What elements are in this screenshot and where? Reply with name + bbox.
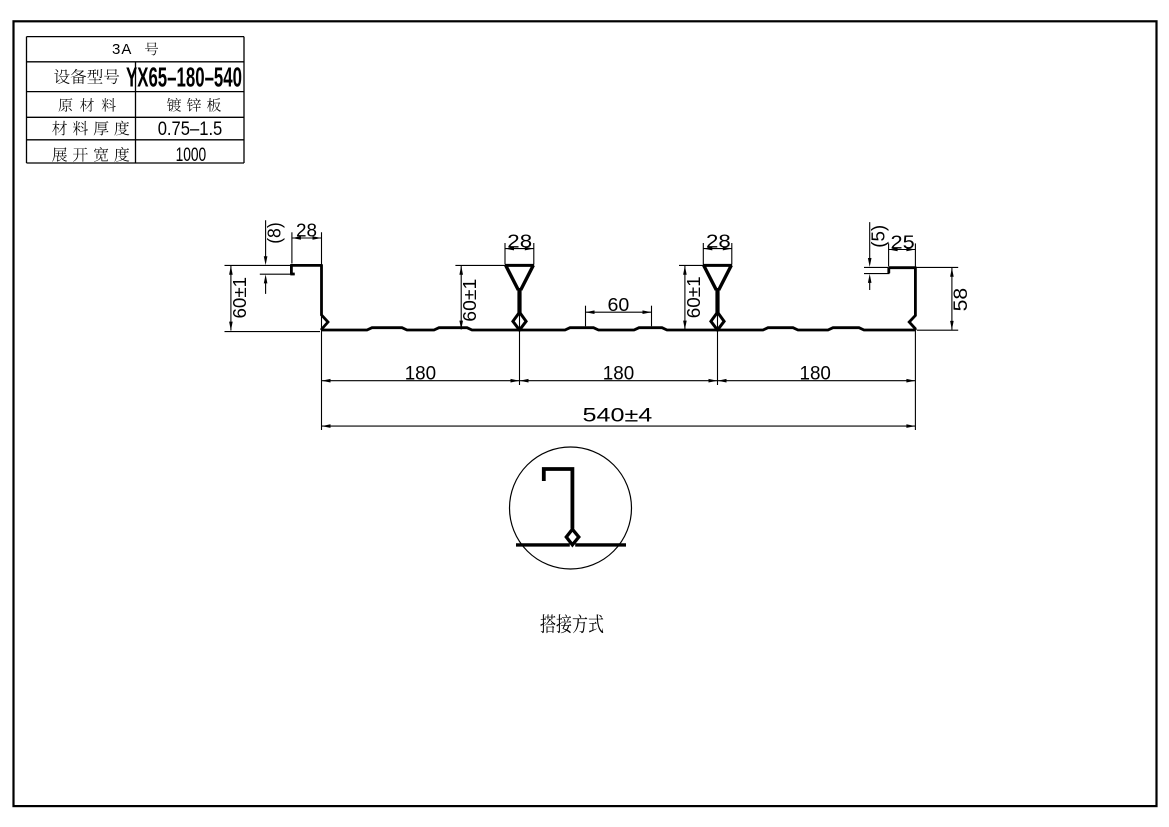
svg-text:60: 60 xyxy=(608,294,630,315)
svg-text:(5): (5) xyxy=(869,225,889,248)
svg-text:28: 28 xyxy=(706,231,731,251)
svg-text:25: 25 xyxy=(891,232,915,252)
svg-text:0.75–1.5: 0.75–1.5 xyxy=(158,119,223,140)
svg-text:180: 180 xyxy=(603,363,634,384)
svg-text:60±1: 60±1 xyxy=(684,276,704,318)
svg-text:180: 180 xyxy=(405,363,436,384)
svg-text:28: 28 xyxy=(296,221,317,241)
svg-text:60±1: 60±1 xyxy=(230,277,250,319)
svg-text:180: 180 xyxy=(800,363,831,384)
svg-text:YX65–180–540: YX65–180–540 xyxy=(126,62,242,93)
svg-text:28: 28 xyxy=(507,231,532,251)
svg-text:60±1: 60±1 xyxy=(460,279,480,322)
svg-text:(8): (8) xyxy=(264,222,284,244)
svg-text:540±4: 540±4 xyxy=(583,406,653,427)
svg-text:1000: 1000 xyxy=(176,145,207,166)
svg-text:3A: 3A xyxy=(112,41,131,58)
svg-text:58: 58 xyxy=(951,288,972,312)
